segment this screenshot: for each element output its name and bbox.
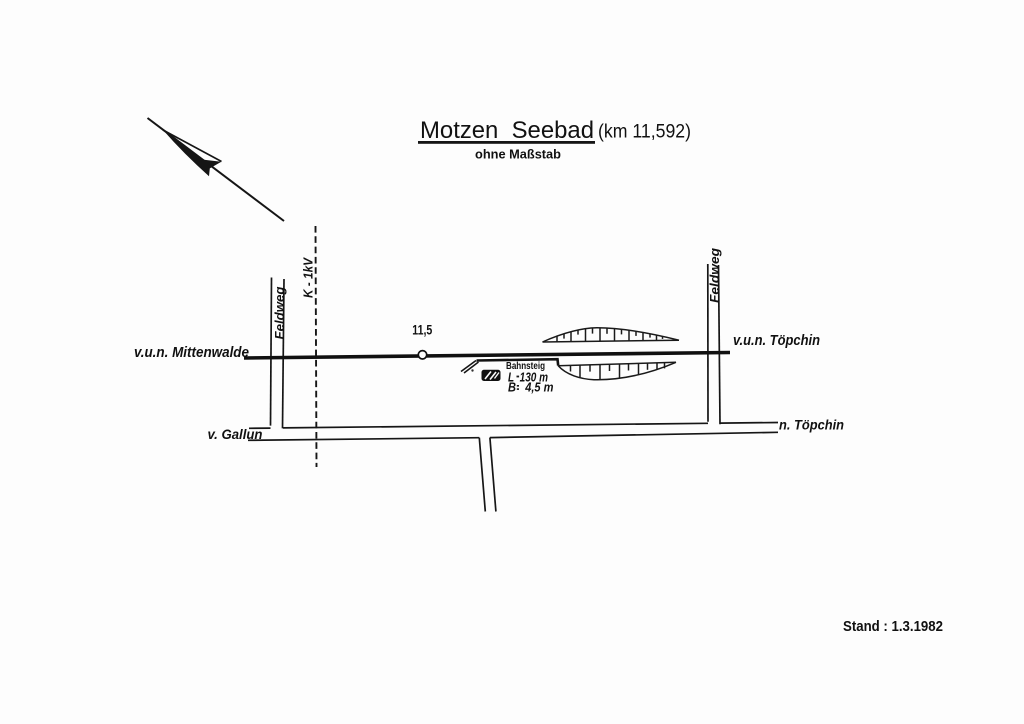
svg-text:(km 11,592): (km 11,592) — [598, 122, 691, 143]
svg-text:Feldweg: Feldweg — [272, 286, 287, 339]
svg-text:11,5: 11,5 — [412, 322, 432, 338]
svg-text:v.u.n. Töpchin: v.u.n. Töpchin — [733, 333, 820, 349]
svg-text:Feldweg: Feldweg — [707, 248, 722, 303]
svg-text:Stand : 1.3.1982: Stand : 1.3.1982 — [843, 618, 943, 635]
svg-text:K - 1kV: K - 1kV — [301, 257, 316, 298]
svg-text:ohne Maßstab: ohne Maßstab — [475, 147, 561, 162]
svg-text:v.u.n. Mittenwalde: v.u.n. Mittenwalde — [134, 345, 249, 361]
svg-text:B 4,5 m: B 4,5 m — [508, 381, 554, 395]
svg-text:n. Töpchin: n. Töpchin — [779, 417, 844, 433]
svg-text:Motzen Seebad: Motzen Seebad — [420, 117, 594, 144]
svg-text:v. Gallun: v. Gallun — [208, 426, 263, 442]
